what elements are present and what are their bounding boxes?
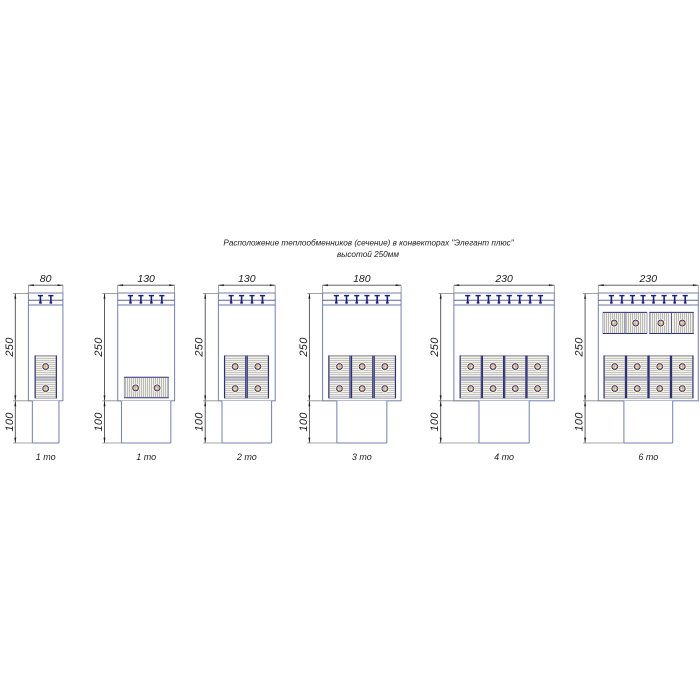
svg-text:250: 250 [574, 337, 586, 358]
svg-text:4 то: 4 то [494, 452, 514, 462]
svg-text:Расположение теплообменников (: Расположение теплообменников (сечение) в… [223, 239, 514, 248]
svg-text:250: 250 [4, 337, 16, 358]
svg-text:100: 100 [93, 412, 105, 432]
svg-text:2 то: 2 то [236, 452, 257, 462]
svg-text:230: 230 [494, 273, 513, 285]
svg-text:высотой 250мм: высотой 250мм [337, 250, 399, 259]
svg-text:100: 100 [194, 412, 206, 432]
svg-text:100: 100 [429, 412, 441, 432]
svg-text:230: 230 [639, 273, 658, 285]
svg-text:100: 100 [4, 412, 16, 432]
svg-text:1 то: 1 то [36, 452, 56, 462]
svg-text:100: 100 [574, 412, 586, 432]
svg-text:100: 100 [298, 412, 310, 432]
svg-text:250: 250 [194, 337, 206, 358]
svg-text:1 то: 1 то [136, 452, 156, 462]
svg-text:130: 130 [238, 273, 256, 285]
svg-text:250: 250 [93, 337, 105, 358]
svg-text:80: 80 [40, 273, 52, 285]
svg-text:250: 250 [429, 337, 441, 358]
svg-text:3 то: 3 то [352, 452, 372, 462]
svg-text:180: 180 [353, 273, 371, 285]
svg-text:6 то: 6 то [638, 452, 658, 462]
svg-text:130: 130 [137, 273, 155, 285]
svg-text:250: 250 [298, 337, 310, 358]
